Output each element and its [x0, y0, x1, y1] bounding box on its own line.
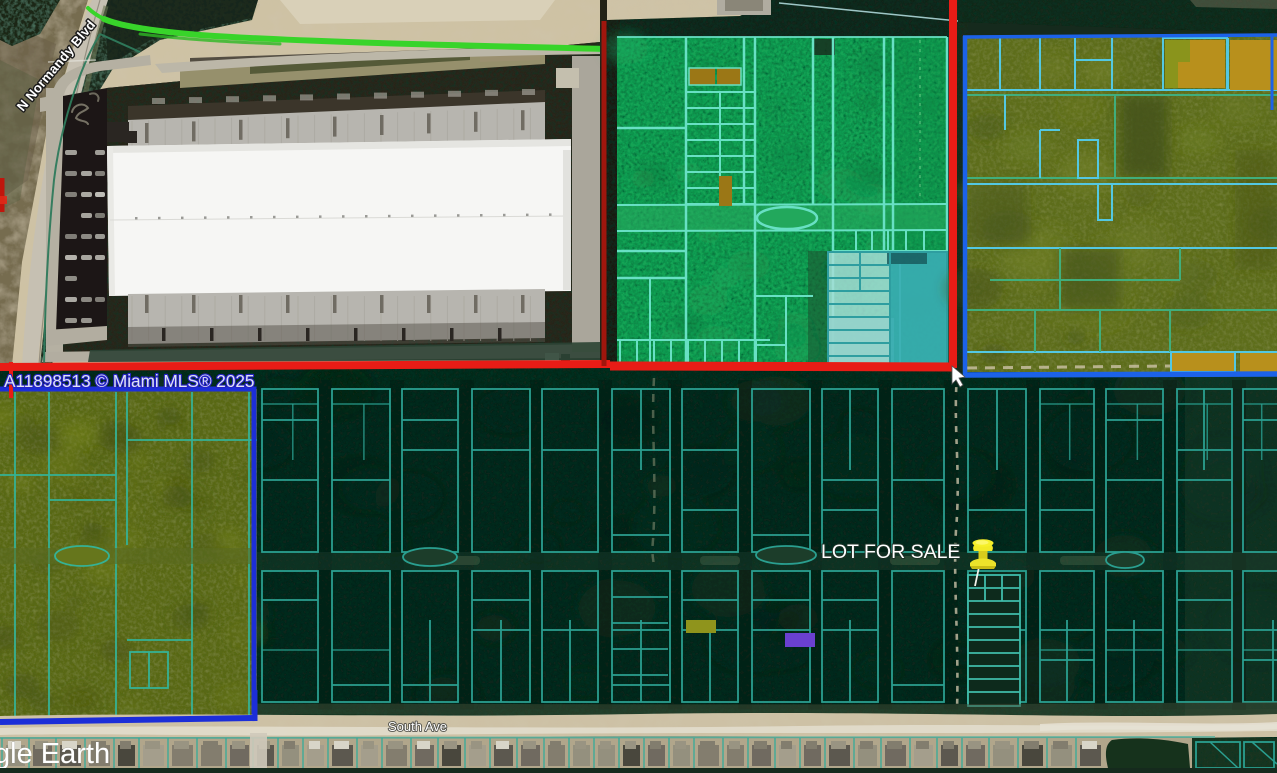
svg-text:LOT FOR SALE: LOT FOR SALE	[821, 541, 960, 563]
svg-text:A11898513 © Miami MLS® 2025: A11898513 © Miami MLS® 2025	[4, 371, 255, 391]
svg-text:gle Earth: gle Earth	[0, 738, 110, 768]
svg-text:South Ave: South Ave	[388, 719, 447, 734]
